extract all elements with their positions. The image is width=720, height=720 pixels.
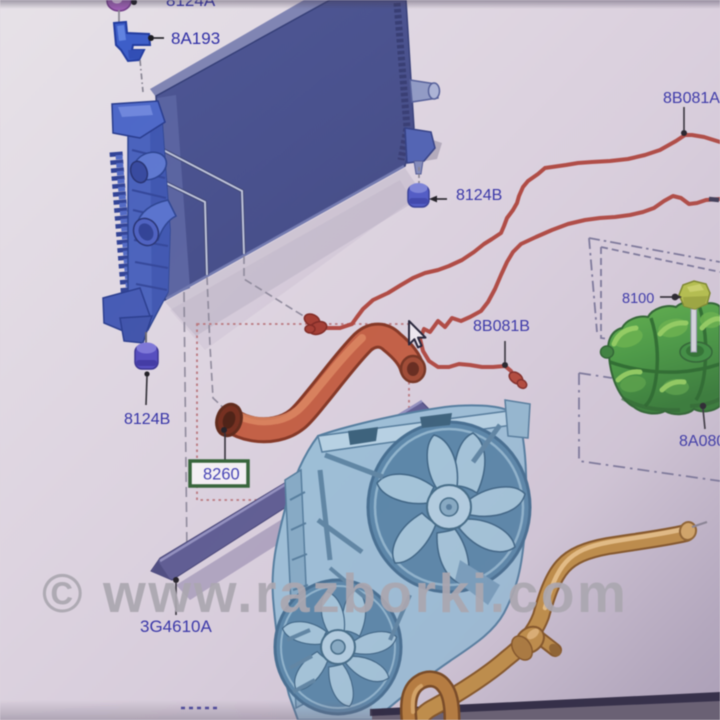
svg-text:© www.razborki.com: © www.razborki.com bbox=[42, 562, 629, 624]
